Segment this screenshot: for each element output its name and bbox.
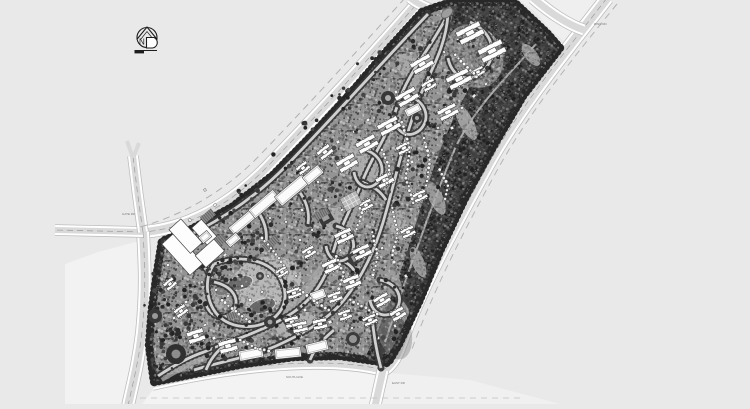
svg-text:EAST RD: EAST RD (392, 381, 406, 385)
svg-text:RING RD: RING RD (594, 22, 608, 26)
svg-text:GATE RD: GATE RD (122, 212, 136, 216)
svg-text:N: N (139, 38, 145, 47)
svg-text:SOUTH AVE: SOUTH AVE (286, 375, 303, 379)
